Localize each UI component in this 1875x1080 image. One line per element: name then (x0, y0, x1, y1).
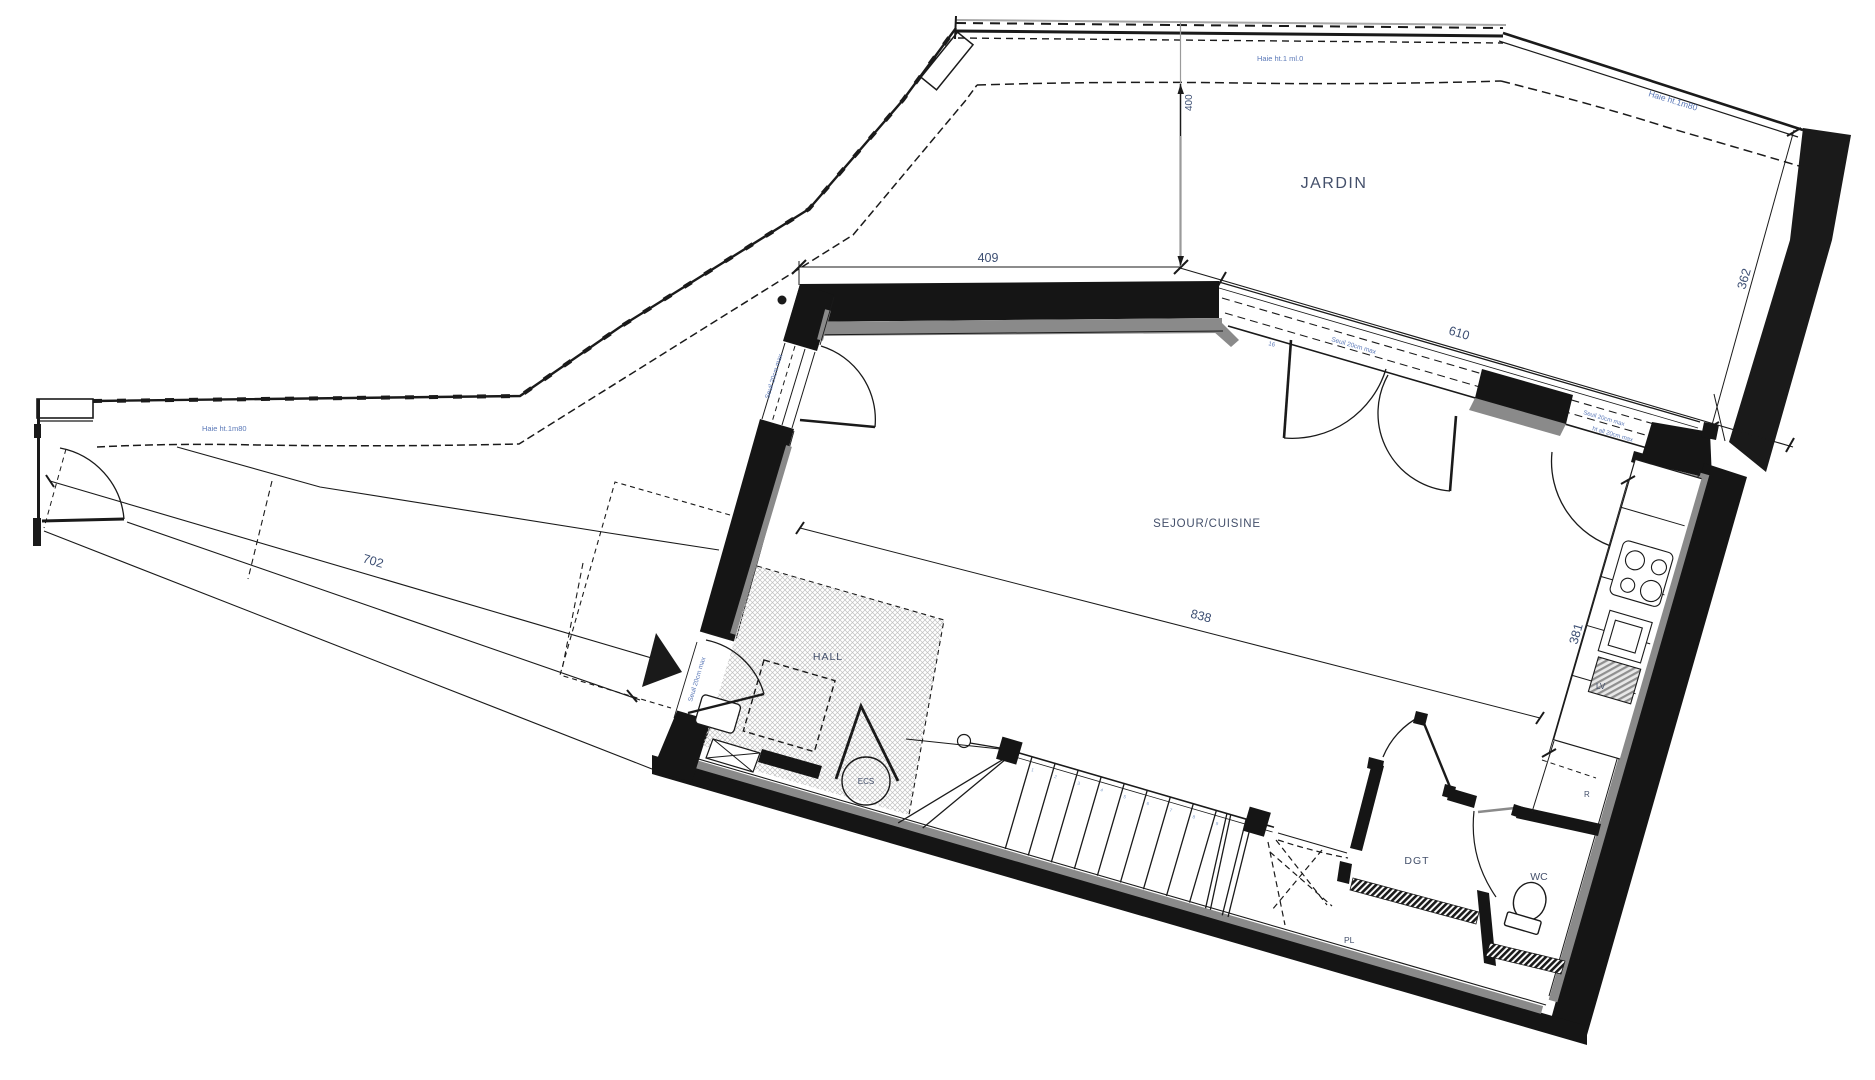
svg-text:ECS: ECS (858, 777, 874, 786)
svg-text:Haie ht.1 ml.0: Haie ht.1 ml.0 (1257, 54, 1303, 63)
svg-text:Haie ht.1m80: Haie ht.1m80 (202, 424, 247, 433)
svg-text:409: 409 (978, 251, 999, 265)
svg-text:LV: LV (1596, 682, 1606, 691)
svg-text:PL: PL (1344, 935, 1355, 945)
svg-text:DGT: DGT (1404, 855, 1429, 867)
svg-text:SEJOUR/CUISINE: SEJOUR/CUISINE (1153, 518, 1261, 530)
svg-text:R: R (1584, 790, 1590, 799)
svg-text:JARDIN: JARDIN (1301, 175, 1368, 192)
svg-text:WC: WC (1530, 871, 1548, 883)
svg-text:400: 400 (1184, 94, 1195, 111)
svg-text:HALL: HALL (813, 651, 843, 663)
